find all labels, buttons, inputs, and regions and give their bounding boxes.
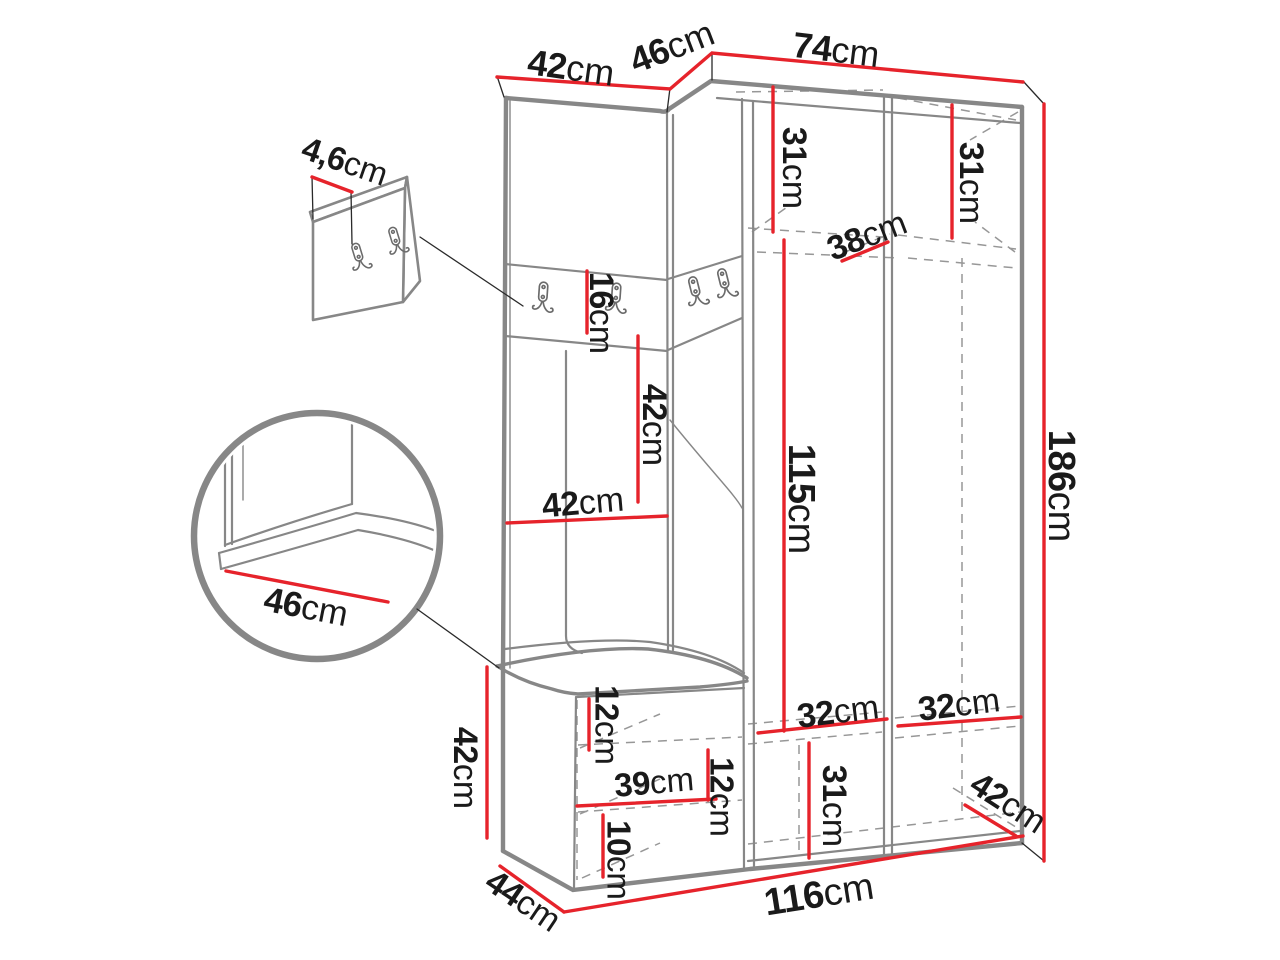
dim-value: 16 — [582, 272, 620, 309]
dim-value: 12 — [589, 685, 626, 721]
dim-unit: cm — [446, 764, 484, 809]
coat-hooks — [532, 266, 738, 313]
dim-value: 12 — [704, 757, 741, 793]
dim-unit: cm — [1040, 492, 1082, 543]
coat-hook-icon — [532, 282, 554, 313]
dim-label-bench-shelf-gap-lower: 12cm — [706, 757, 739, 837]
dim-unit: cm — [582, 309, 620, 354]
dim-value: 42 — [540, 484, 580, 525]
dim-value: 31 — [775, 127, 813, 164]
dim-label-bench-height: 42cm — [448, 727, 482, 809]
dim-value: 42 — [525, 41, 569, 87]
dim-label-back-panel-width: 42cm — [541, 482, 626, 523]
dim-label-top-shelf-height-right: 31cm — [954, 142, 988, 224]
dim-label-door-inner-width-left: 32cm — [795, 690, 881, 734]
dim-label-door-inner-width-right: 32cm — [916, 683, 1002, 727]
dim-value: 42 — [446, 727, 484, 764]
dim-label-top-shelf-height-left: 31cm — [777, 127, 811, 209]
coat-hook-icon — [683, 274, 710, 308]
dim-unit: cm — [589, 721, 626, 765]
dim-value: 186 — [1040, 430, 1082, 492]
dim-label-back-panel-height: 42cm — [637, 384, 671, 466]
coat-hook-icon — [712, 266, 739, 300]
dim-unit: cm — [952, 179, 990, 224]
dim-unit: cm — [775, 164, 813, 209]
diagram-canvas: 42cm46cm74cm4,6cm31cm31cm38cm16cm42cm42c… — [0, 0, 1280, 960]
dim-unit: cm — [648, 760, 695, 801]
dim-unit: cm — [564, 47, 617, 94]
dim-unit: cm — [601, 856, 638, 900]
dim-unit: cm — [820, 866, 877, 915]
dim-label-bench-bottom-shelf-height: 10cm — [603, 820, 636, 900]
dim-unit: cm — [635, 421, 673, 466]
dim-unit: cm — [780, 504, 822, 555]
dim-value: 32 — [795, 694, 836, 736]
dim-value: 31 — [952, 142, 990, 179]
dim-value: 42 — [635, 384, 673, 421]
dim-label-bench-shelf-gap-upper: 12cm — [591, 685, 624, 765]
dim-unit: cm — [829, 29, 882, 76]
dim-unit: cm — [952, 681, 1002, 724]
dim-unit: cm — [704, 793, 741, 837]
dim-label-hanging-space-height: 115cm — [782, 444, 820, 554]
furniture-line-drawing — [0, 0, 1280, 960]
dim-value: 32 — [916, 687, 957, 729]
dim-unit: cm — [577, 480, 625, 522]
dim-label-total-height: 186cm — [1042, 430, 1080, 543]
dim-value: 10 — [601, 820, 638, 856]
dim-label-width-wardrobe: 74cm — [791, 27, 882, 73]
dim-unit: cm — [831, 688, 881, 731]
dim-value: 31 — [815, 765, 853, 802]
dim-value: 74 — [790, 24, 834, 69]
dim-unit: cm — [815, 802, 853, 847]
dim-value: 39 — [613, 764, 652, 804]
dim-label-hook-strip-height: 16cm — [584, 272, 618, 354]
hook-panel-detail — [310, 177, 420, 320]
dim-value: 115 — [780, 444, 822, 504]
dim-label-bottom-compartment-height: 31cm — [817, 765, 851, 847]
dim-label-bench-inner-width: 39cm — [613, 762, 695, 802]
